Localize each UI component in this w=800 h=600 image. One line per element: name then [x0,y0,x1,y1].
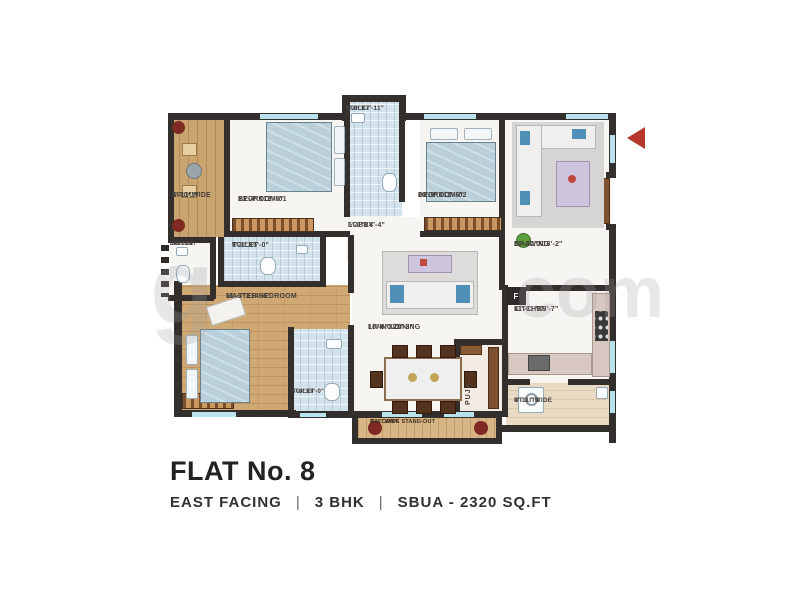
sofa-cushion [520,131,530,145]
room-dimensions: 8'-1"X5'-0" [232,241,269,250]
separator: | [379,494,384,511]
room-dimensions: SITOUT [172,191,199,200]
facing-label: EAST FACING [170,494,282,511]
east-entrance-arrow-icon [627,127,645,149]
flat-specs: EAST FACING | 3 BHK | SBUA - 2320 SQ.FT [170,494,552,511]
window [424,114,476,119]
window [610,135,615,163]
wall [218,237,224,287]
wall [499,237,505,290]
dining-chair [370,371,383,388]
sofa-cushion [520,191,530,205]
room-dimensions: 10'-9"X12'-5" [418,191,463,200]
bhk-label: 3 BHK [315,494,365,511]
dining-chair [416,345,432,358]
wall [210,243,216,299]
wall [352,438,502,444]
bed-pillow [334,158,345,186]
table-decor [568,175,576,183]
room-dimensions: 5'-0"X7'-11" [346,105,384,113]
sofa-cushion [456,285,470,303]
wall [320,237,326,287]
kitchen-counter [508,353,592,375]
dining-chair [416,401,432,414]
bed-pillow [430,128,458,140]
room-dimensions: 11'-11"X18'-2" [514,240,563,249]
room-dimensions: BALCONY [170,241,196,248]
bed-pillow [186,335,198,365]
hob-icon [595,311,608,341]
dining-decor [408,373,417,382]
wall [348,235,354,293]
window [610,341,615,373]
room-dimensions: 11'-7"X14'-6" [226,292,271,301]
sink-icon [351,113,365,123]
dining-table [384,357,462,401]
sitout-table [186,163,202,179]
window [260,114,318,119]
sofa-cushion [390,285,404,303]
wall [526,285,614,291]
room-dimensions: BALCONY [370,419,399,426]
wall [174,281,182,417]
wall [502,379,530,385]
plant-pot [172,121,185,134]
sitout-chair [182,143,197,156]
wall [420,231,504,237]
separator: | [296,494,301,511]
wall [568,379,614,385]
wall [224,113,230,237]
dining-chair [440,401,456,414]
tv-console [408,255,452,273]
wall [342,95,406,102]
wall [399,102,405,202]
plant-pot [474,421,488,435]
window [192,412,236,417]
room-dimensions: 16'-6"X20'-3" [368,323,413,332]
toilet-icon [260,257,276,275]
wall [502,425,616,432]
wall [348,325,354,417]
window [566,114,608,119]
room-dimensions: 5'-0"X4'-4" [348,221,385,230]
wall [218,281,326,287]
room-dimensions: 11'-11"X9'-7" [514,305,558,314]
geyser-icon [596,387,608,399]
window [610,391,615,413]
toilet-icon [176,265,190,283]
flat-title: FLAT No. 8 [170,456,552,487]
room-dimensions: 4'-11" WIDE [514,397,552,405]
dining-chair [392,401,408,414]
toilet-icon [382,173,397,192]
coffee-table [556,161,590,207]
fridge-icon: F [506,287,526,305]
dining-decor [430,373,439,382]
toilet-icon [324,383,340,401]
kitchen-sink-icon [528,355,550,371]
service-balcony-grill [161,245,169,297]
room-label-puja: PUJA [465,361,472,405]
puja-mandir [460,345,482,355]
bed-pillow [334,126,345,154]
dining-chair [440,345,456,358]
puja-door [488,347,499,409]
tv-decor [420,259,427,266]
area-label: SBUA - 2320 SQ.FT [398,494,552,511]
wardrobe-bedroom-02 [424,217,502,231]
floorplan-page: F 4'-11"WIDE SITOUT SERVICE BALCONY BEDR… [0,0,800,600]
bed-pillow [186,369,198,399]
wall [609,230,616,331]
room-dimensions: 13'-4"X12'-5" [238,195,283,204]
wall [168,113,348,120]
wardrobe-bedroom-01 [232,218,314,232]
plant-pot [172,219,185,232]
bed-pillow [464,128,492,140]
sink-icon [296,245,308,254]
window [300,413,326,417]
sofa-cushion [572,129,586,139]
dining-chair [392,345,408,358]
sink-icon [176,247,188,256]
floor-plan: F 4'-11"WIDE SITOUT SERVICE BALCONY BEDR… [168,95,626,447]
room-dimensions: 6'-0"X9'-0" [292,389,324,397]
wall [288,327,294,417]
sink-icon [326,339,342,349]
bed-bedroom-01 [266,122,332,192]
flat-info: FLAT No. 8 EAST FACING | 3 BHK | SBUA - … [170,456,552,511]
bed-master [200,329,250,403]
